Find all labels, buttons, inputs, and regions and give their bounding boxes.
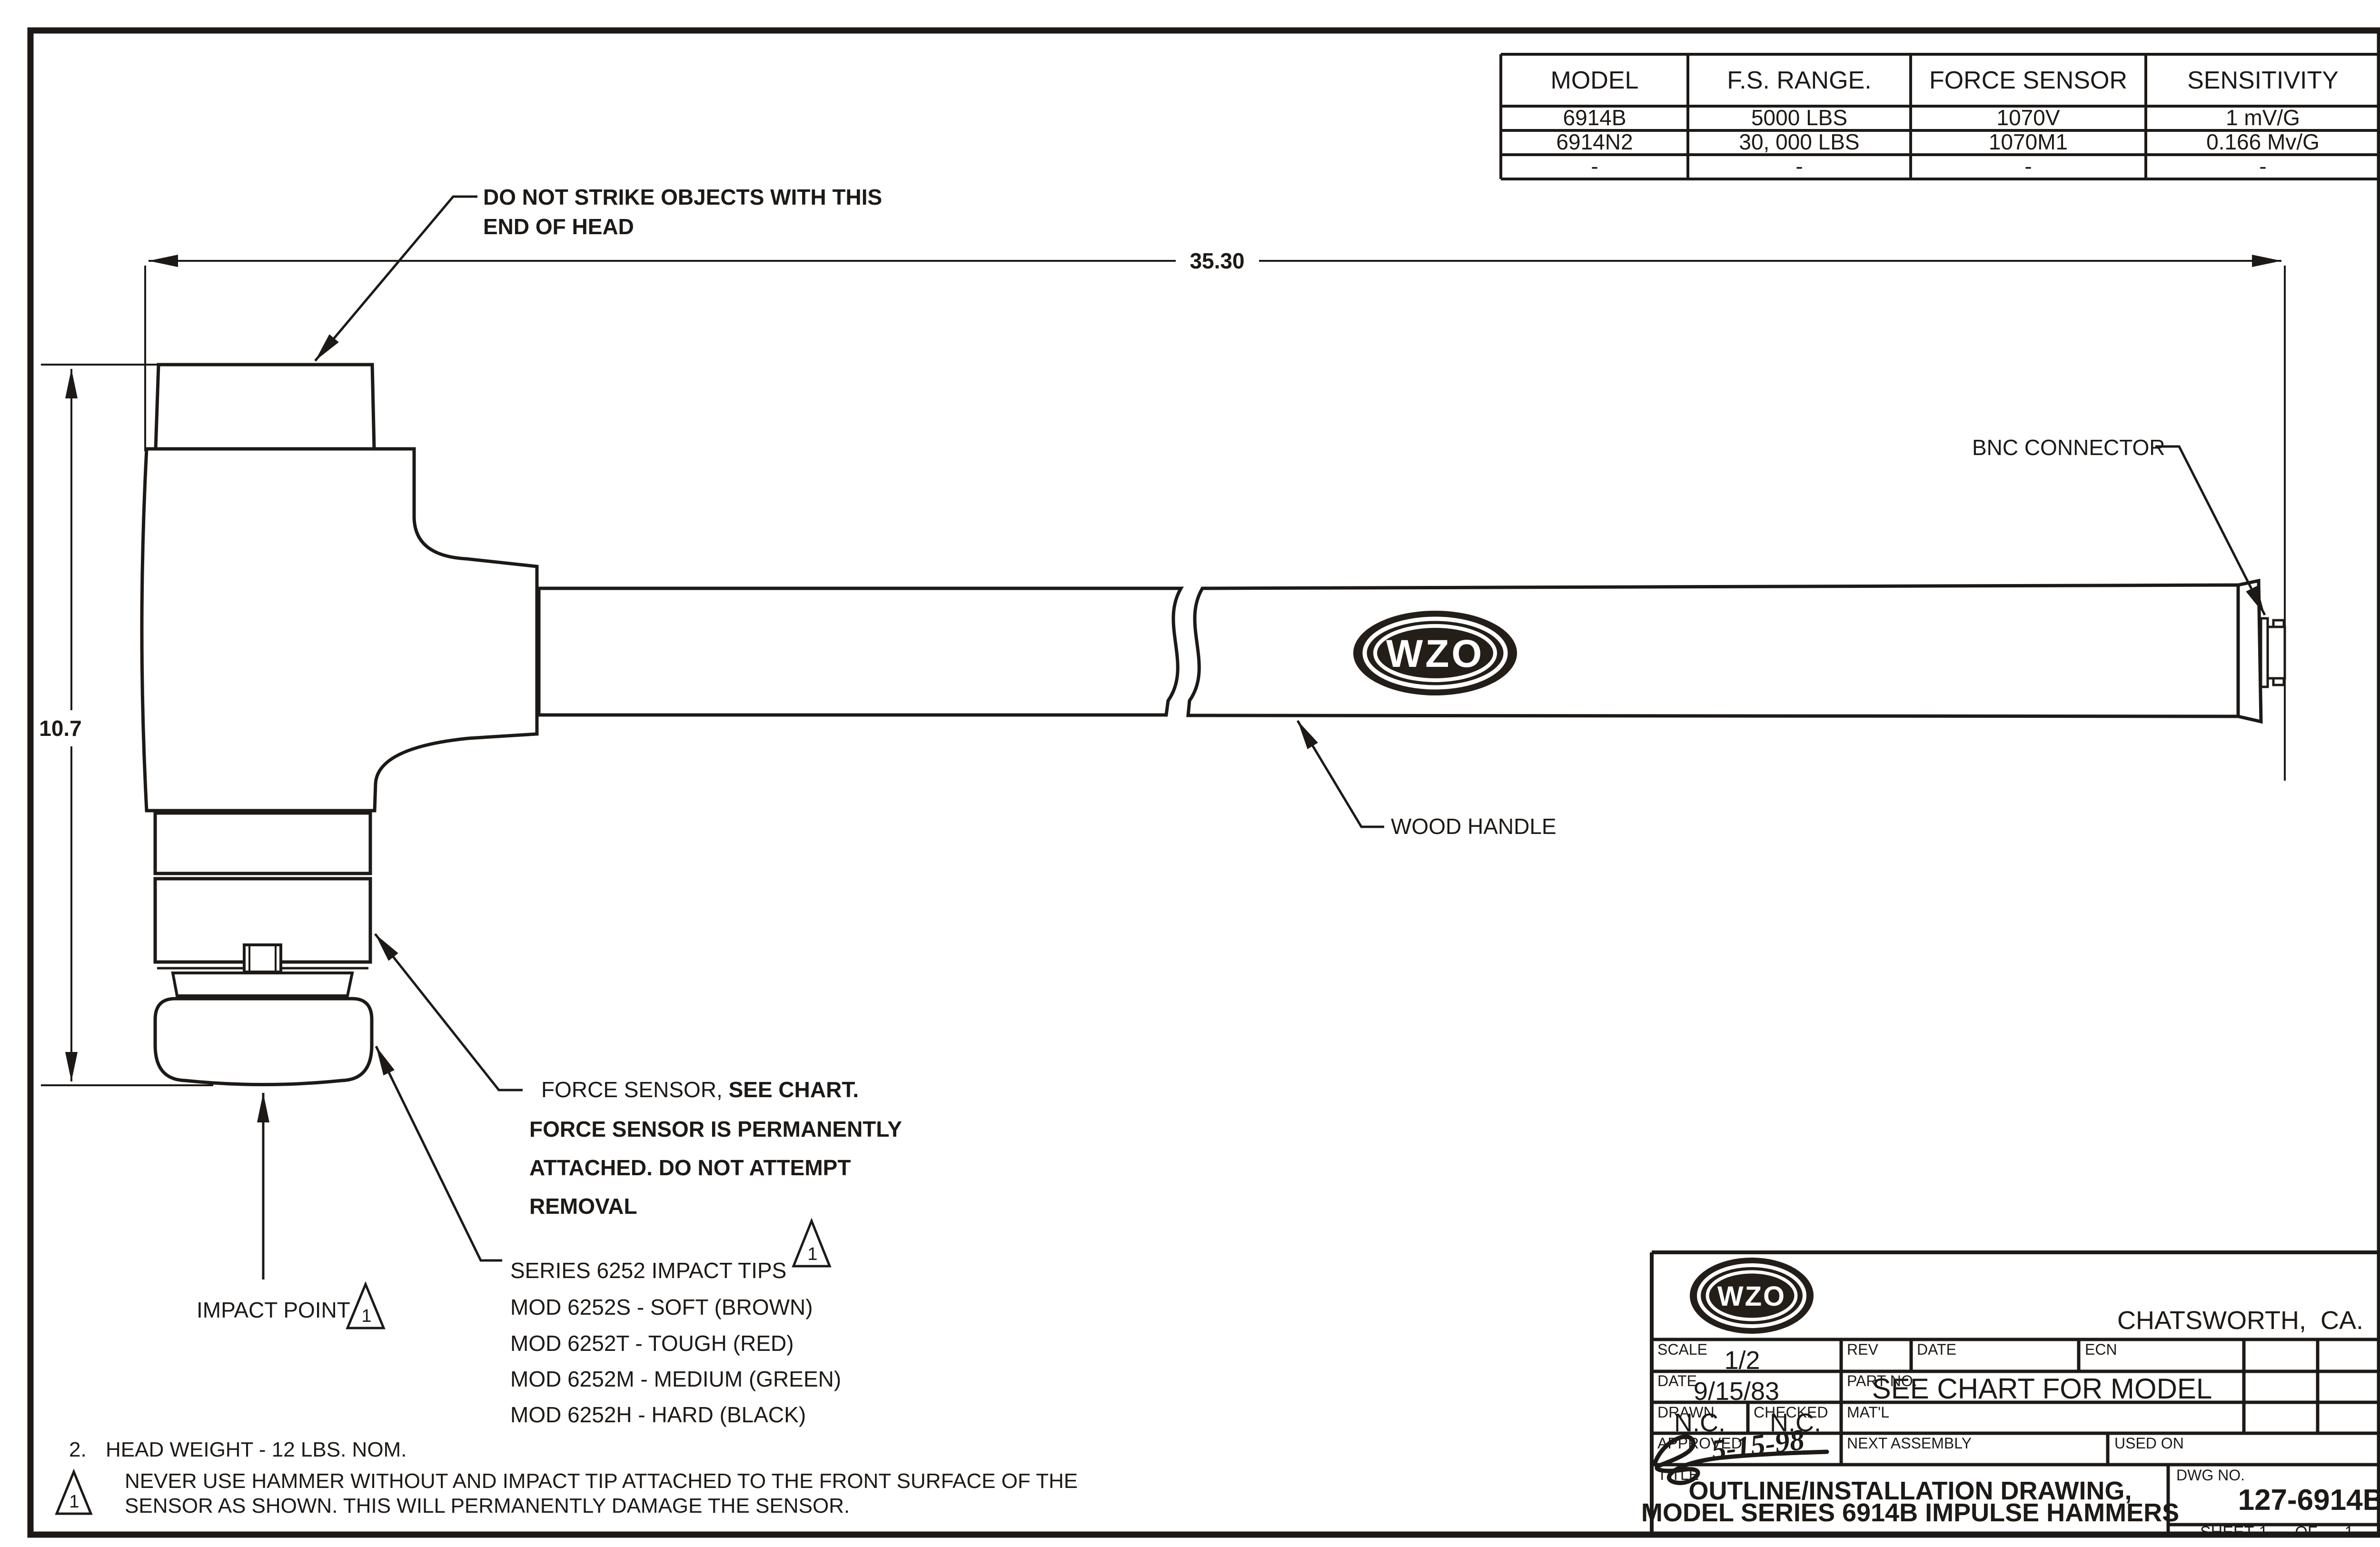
drawing-title: MODEL SERIES 6914B IMPULSE HAMMERS [1641, 1498, 2179, 1527]
overall-length-dim: 35.30 [1190, 248, 1244, 273]
leader-do-not-strike [315, 197, 477, 361]
flag-number: 1 [69, 1492, 79, 1512]
callout-text: DO NOT STRIKE OBJECTS WITH THIS END OF H… [197, 185, 2165, 1427]
spec-cell: 1 mV/G [2226, 105, 2300, 130]
spec-cell: 0.166 Mv/G [2206, 129, 2320, 154]
spec-col-header: FORCE SENSOR [1929, 67, 2127, 94]
callout-force-sensor: REMOVAL [529, 1194, 637, 1219]
note-1-text: SENSOR AS SHOWN. THIS WILL PERMANENTLY D… [125, 1494, 850, 1517]
spec-col-header: MODEL [1551, 67, 1639, 94]
callout-impact-tips: MOD 6252H - HARD (BLACK) [510, 1402, 806, 1427]
used-on-label: USED ON [2114, 1435, 2184, 1452]
hammer-outline [142, 365, 2285, 1085]
title-logo-text: WZO [1717, 1281, 1786, 1312]
dwg-no-label: DWG NO. [2176, 1467, 2245, 1484]
spec-cell: 6914B [1563, 105, 1626, 130]
title-block-text: CHATSWORTH, CA. SCALE 1/2 REV DATE ECN D… [1641, 1306, 2380, 1541]
date-label: DATE [1917, 1341, 1956, 1358]
leader-force-sensor [375, 934, 523, 1090]
spec-cell: - [2259, 154, 2266, 178]
spec-cell: 5000 LBS [1751, 105, 1847, 130]
spec-col-header: F.S. RANGE. [1727, 67, 1871, 94]
spec-col-header: SENSITIVITY [2187, 67, 2339, 94]
spec-cell: - [2024, 154, 2032, 178]
wood-handle-left [539, 588, 1181, 715]
callout-wood-handle: WOOD HANDLE [1391, 814, 1557, 839]
matl-label: MAT'L [1847, 1404, 1889, 1421]
spec-cell: 1070V [1996, 105, 2060, 130]
notes: 2. HEAD WEIGHT - 12 LBS. NOM. NEVER USE … [69, 1438, 1078, 1517]
handle-logo-text: WZO [1386, 632, 1484, 675]
callout-impact-tips: MOD 6252M - MEDIUM (GREEN) [510, 1367, 841, 1391]
note-1-text: NEVER USE HAMMER WITHOUT AND IMPACT TIP … [125, 1469, 1078, 1493]
flag-number: 1 [807, 1244, 817, 1264]
rev-label: REV [1847, 1341, 1878, 1358]
scale-label: SCALE [1657, 1341, 1707, 1358]
handle-logo: WZO [1353, 611, 1517, 695]
note-2-text: HEAD WEIGHT - 12 LBS. NOM. [106, 1438, 407, 1461]
date-value: 9/15/83 [1694, 1377, 1779, 1406]
company-location: CHATSWORTH, CA. [2117, 1306, 2363, 1335]
head-collar [155, 813, 370, 873]
callout-impact-tips: MOD 6252T - TOUGH (RED) [510, 1331, 794, 1356]
bnc-barrel [2268, 627, 2285, 678]
spec-cell: - [1795, 154, 1803, 178]
callout-force-sensor: ATTACHED. DO NOT ATTEMPT [529, 1155, 851, 1180]
spec-cell: 30, 000 LBS [1739, 129, 1859, 154]
leader-impact-tips [376, 1046, 502, 1260]
flag-number: 1 [361, 1306, 371, 1326]
hammer-head-body [142, 449, 537, 811]
part-no-value: SEE CHART FOR MODEL [1872, 1373, 2212, 1405]
spec-cell: 6914N2 [1556, 129, 1633, 154]
impact-tip [155, 999, 372, 1085]
callout-force-sensor-regular: FORCE SENSOR, [541, 1077, 729, 1102]
note-2-number: 2. [69, 1438, 87, 1461]
engineering-drawing-sheet: MODEL F.S. RANGE. FORCE SENSOR SENSITIVI… [0, 0, 2380, 1547]
sheet-label: SHEET [2200, 1523, 2254, 1541]
tip-taper-collar [173, 973, 352, 996]
callout-force-sensor: FORCE SENSOR IS PERMANENTLY [529, 1117, 902, 1141]
sheet-of-label: OF [2295, 1523, 2317, 1541]
callout-impact-tips: SERIES 6252 IMPACT TIPS [510, 1258, 786, 1283]
callout-bnc-connector: BNC CONNECTOR [1972, 435, 2165, 460]
drawing-canvas: MODEL F.S. RANGE. FORCE SENSOR SENSITIVI… [0, 0, 2380, 1547]
callout-do-not-strike: DO NOT STRIKE OBJECTS WITH THIS [483, 185, 882, 209]
next-assembly-label: NEXT ASSEMBLY [1847, 1435, 1972, 1452]
sheet-number: 1 [2259, 1523, 2268, 1541]
hammer-head-top-cap [156, 365, 374, 449]
spec-table-text: MODEL F.S. RANGE. FORCE SENSOR SENSITIVI… [1551, 67, 2339, 178]
leader-wood-handle [1298, 721, 1384, 827]
spec-cell: - [1591, 154, 1598, 178]
date-label: DATE [1657, 1372, 1697, 1389]
callout-do-not-strike: END OF HEAD [483, 214, 634, 239]
sheet-total: 1 [2345, 1523, 2354, 1541]
drawn-value: N.C. [1674, 1408, 1725, 1437]
spec-cell: 1070M1 [1989, 129, 2068, 154]
dwg-no-value: 127-6914B [2238, 1484, 2380, 1517]
wood-handle-right [1188, 585, 2238, 716]
callout-force-sensor-bold: SEE CHART. [729, 1077, 859, 1102]
scale-value: 1/2 [1724, 1346, 1760, 1375]
callout-impact-tips: MOD 6252S - SOFT (BROWN) [510, 1295, 813, 1319]
head-height-dim: 10.7 [39, 716, 82, 741]
callout-impact-point: IMPACT POINT [197, 1298, 350, 1322]
callout-force-sensor: FORCE SENSOR, SEE CHART. [541, 1077, 859, 1102]
ecn-label: ECN [2085, 1341, 2117, 1358]
title-block-logo: WZO [1690, 1258, 1814, 1334]
